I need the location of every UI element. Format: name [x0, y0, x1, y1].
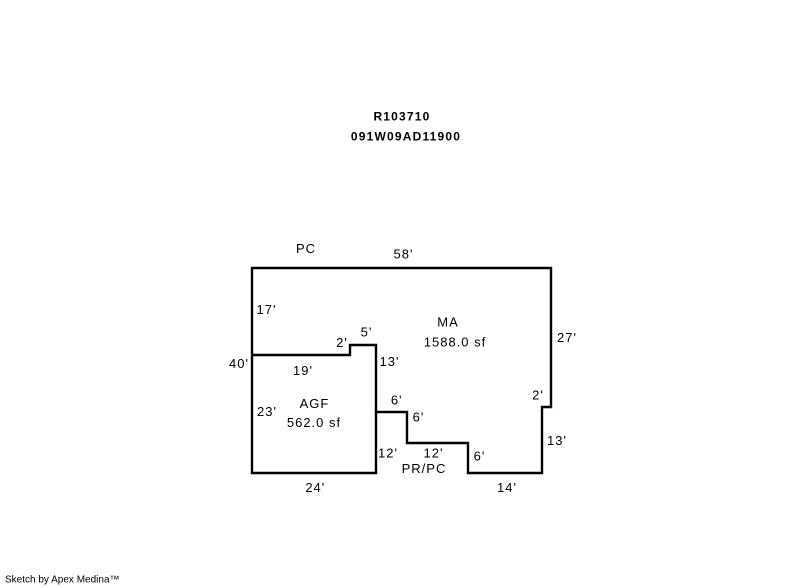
svg-text:13': 13'	[547, 433, 567, 448]
svg-text:PC: PC	[296, 241, 316, 256]
svg-text:091W09AD11900: 091W09AD11900	[351, 130, 461, 144]
svg-text:6': 6'	[413, 410, 425, 425]
svg-text:PR/PC: PR/PC	[402, 461, 447, 476]
svg-text:23': 23'	[257, 404, 277, 419]
svg-text:R103710: R103710	[373, 110, 430, 124]
svg-text:2': 2'	[532, 388, 544, 403]
svg-text:27': 27'	[557, 330, 577, 345]
svg-text:1588.0 sf: 1588.0 sf	[424, 335, 487, 350]
svg-text:40': 40'	[229, 356, 249, 371]
svg-text:17': 17'	[257, 302, 277, 317]
svg-text:562.0 sf: 562.0 sf	[287, 415, 341, 430]
svg-text:Sketch by Apex Medina™: Sketch by Apex Medina™	[5, 575, 120, 586]
svg-text:6': 6'	[474, 449, 486, 464]
svg-text:14': 14'	[497, 480, 517, 495]
svg-text:24': 24'	[305, 480, 325, 495]
svg-text:12': 12'	[378, 446, 398, 461]
svg-text:AGF: AGF	[300, 396, 330, 411]
svg-text:13': 13'	[380, 354, 400, 369]
svg-text:12': 12'	[424, 446, 444, 461]
svg-text:MA: MA	[437, 315, 459, 330]
svg-text:6': 6'	[391, 393, 403, 408]
svg-text:5': 5'	[361, 325, 373, 340]
svg-text:19': 19'	[293, 363, 313, 378]
svg-text:58': 58'	[394, 247, 414, 262]
svg-text:2': 2'	[336, 335, 348, 350]
